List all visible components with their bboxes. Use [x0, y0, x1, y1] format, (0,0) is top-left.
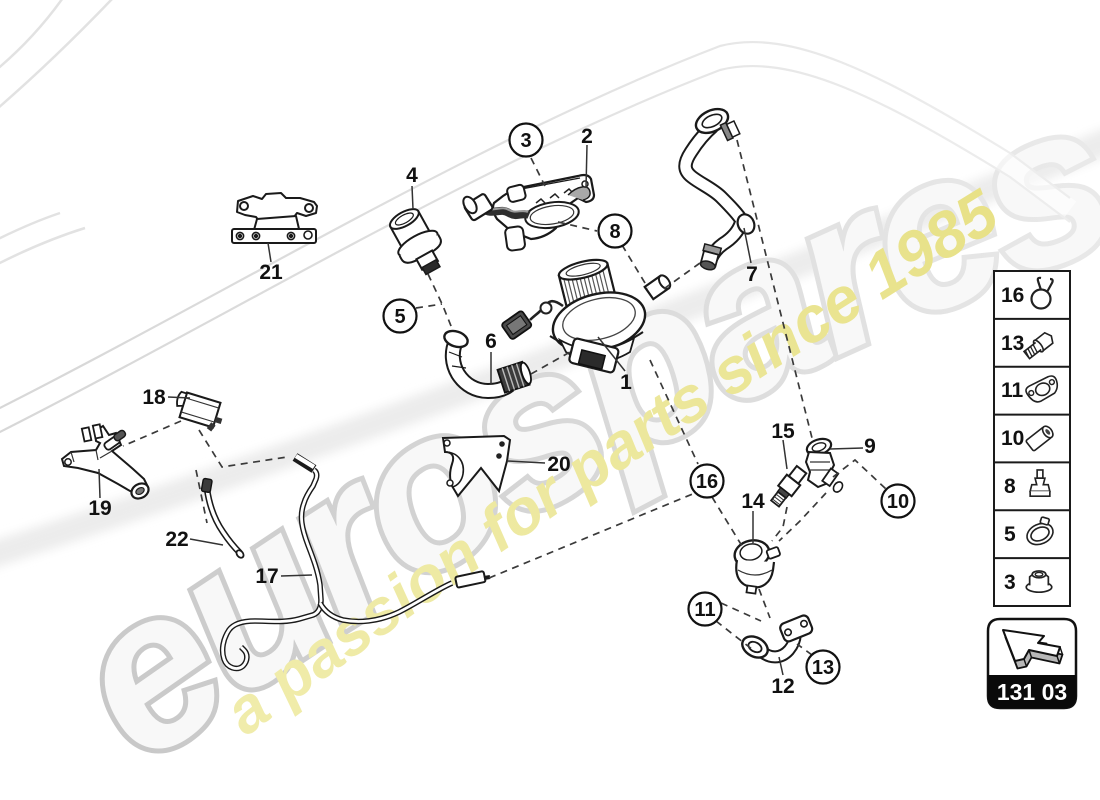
- svg-text:2: 2: [581, 125, 593, 148]
- svg-text:5: 5: [394, 306, 405, 328]
- svg-text:13: 13: [1001, 332, 1024, 355]
- svg-text:8: 8: [609, 221, 620, 243]
- svg-text:11: 11: [694, 599, 715, 621]
- svg-text:6: 6: [485, 330, 497, 353]
- svg-text:16: 16: [1001, 284, 1024, 307]
- svg-text:eurospares: eurospares: [28, 53, 1100, 800]
- svg-text:16: 16: [696, 471, 718, 493]
- svg-text:7: 7: [746, 263, 758, 286]
- svg-text:18: 18: [142, 386, 166, 409]
- svg-text:14: 14: [741, 490, 765, 513]
- svg-text:5: 5: [1004, 523, 1016, 546]
- svg-text:11: 11: [1001, 379, 1024, 402]
- svg-text:8: 8: [1004, 475, 1016, 498]
- svg-text:15: 15: [771, 420, 795, 443]
- svg-text:3: 3: [520, 130, 531, 152]
- svg-text:131 03: 131 03: [997, 679, 1067, 705]
- svg-text:13: 13: [812, 657, 834, 679]
- svg-text:10: 10: [1001, 427, 1024, 450]
- svg-text:9: 9: [864, 435, 876, 458]
- svg-text:1: 1: [620, 371, 632, 394]
- svg-text:17: 17: [255, 565, 278, 588]
- svg-text:12: 12: [771, 675, 794, 698]
- svg-text:19: 19: [88, 497, 111, 520]
- svg-text:21: 21: [259, 261, 283, 284]
- svg-text:4: 4: [406, 164, 418, 187]
- svg-text:22: 22: [165, 528, 188, 551]
- svg-text:10: 10: [887, 491, 909, 513]
- svg-text:20: 20: [547, 453, 570, 476]
- svg-text:3: 3: [1004, 571, 1016, 594]
